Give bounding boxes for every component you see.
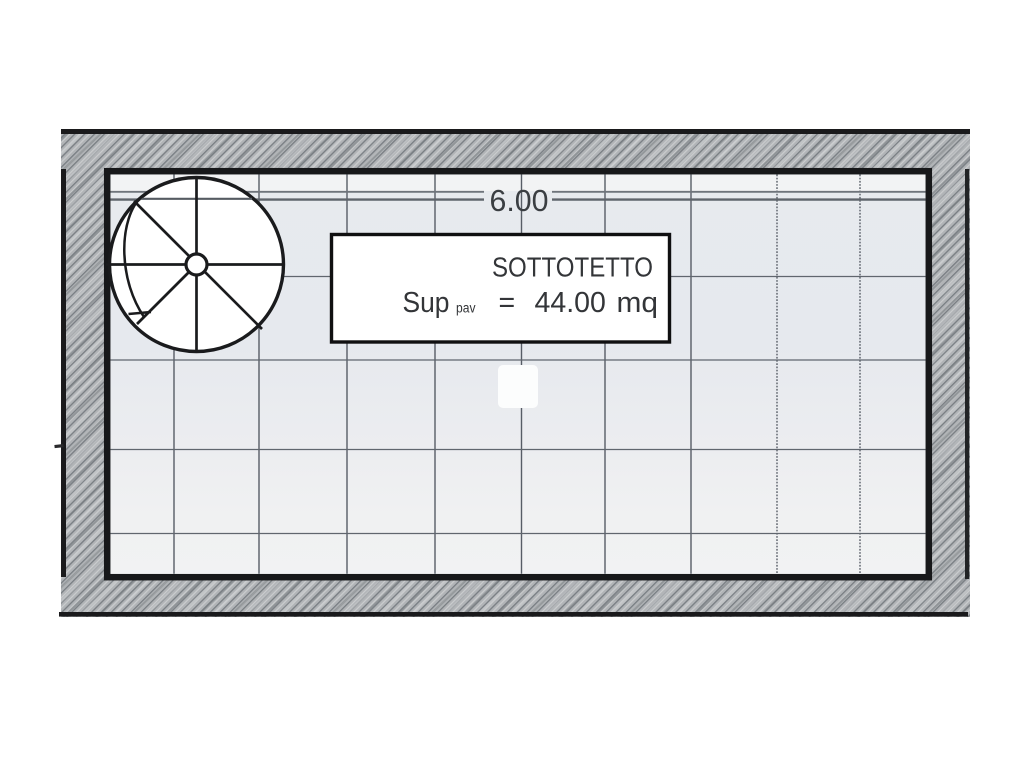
svg-text:6.00: 6.00 [490,184,549,218]
svg-text:mq: mq [617,287,659,319]
svg-text:pav: pav [456,301,476,316]
svg-text:SOTTOTETTO: SOTTOTETTO [492,252,653,283]
svg-text:44.00: 44.00 [535,287,606,319]
svg-text:Sup: Sup [403,287,450,319]
svg-text:=: = [499,287,516,319]
